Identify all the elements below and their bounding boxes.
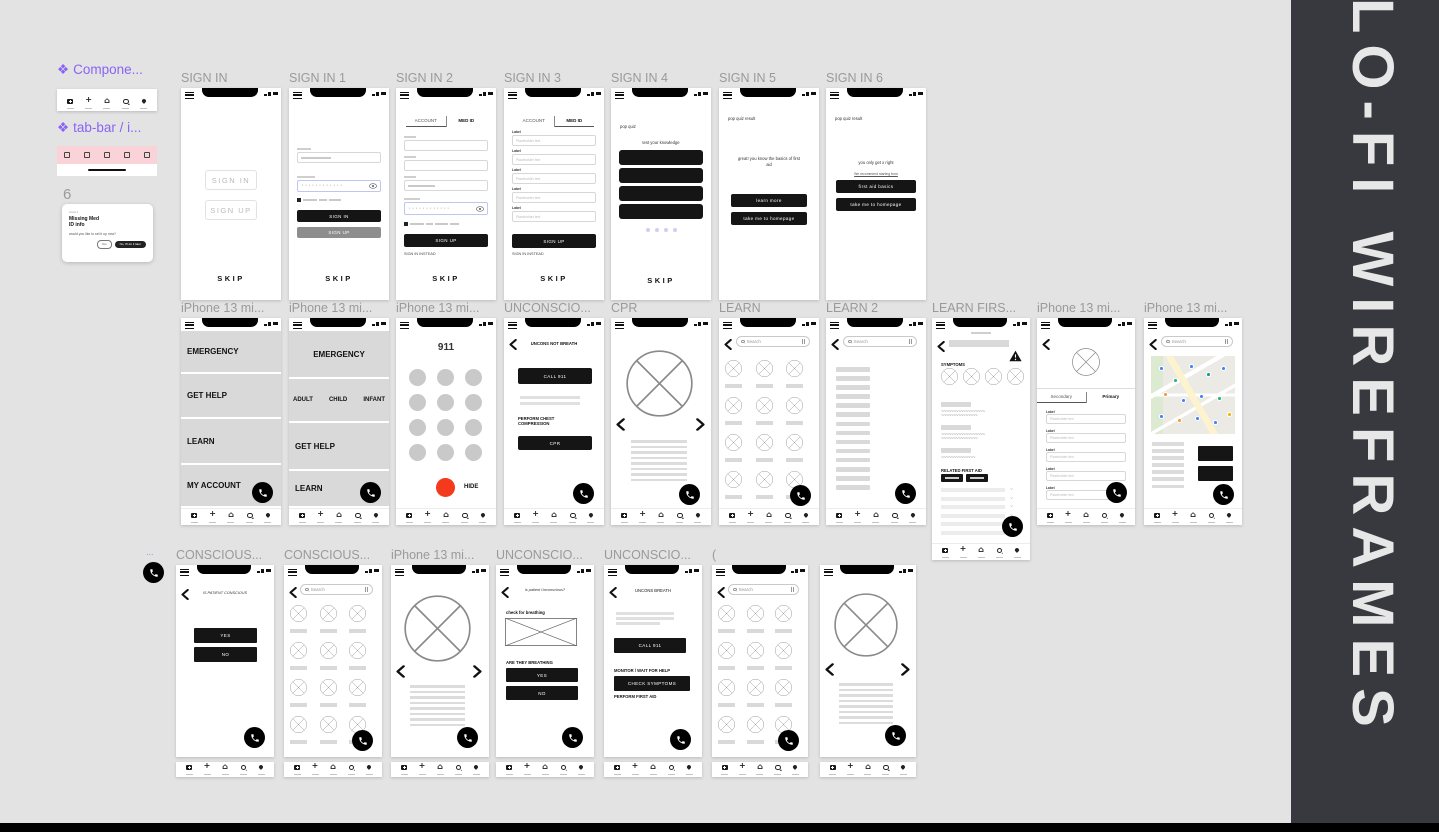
med-id-card[interactable]: Card 1 Missing Med ID info would you lik… — [62, 204, 153, 262]
sign-up-button[interactable]: SIGN UP — [205, 200, 257, 220]
menu-item-emergency[interactable]: EMERGENCY — [289, 331, 389, 377]
yes-button[interactable]: YES — [506, 668, 578, 682]
terms-checkbox[interactable] — [404, 222, 459, 226]
home-icon[interactable] — [549, 512, 558, 523]
carousel-next-icon[interactable] — [901, 663, 910, 676]
home-icon[interactable] — [329, 764, 338, 775]
medkit-icon[interactable] — [400, 764, 409, 775]
component-label-main[interactable]: ❖Compone... — [57, 62, 143, 78]
medkit-icon[interactable] — [1046, 512, 1055, 523]
topic-grid[interactable] — [718, 605, 792, 753]
topic-thumbnail[interactable] — [718, 642, 735, 679]
account-medid-tabs[interactable]: ACCOUNTMED ID — [406, 116, 486, 127]
filter-icon[interactable] — [802, 339, 805, 344]
home-icon[interactable] — [755, 764, 764, 775]
carousel-next-icon[interactable] — [473, 665, 482, 678]
frame-title[interactable]: ( — [712, 548, 716, 562]
back-chevron-icon[interactable] — [1042, 337, 1050, 348]
tab-bar[interactable] — [396, 508, 496, 525]
input-field[interactable]: Placeholder text — [512, 192, 596, 203]
component-tab-bar-placeholder[interactable] — [57, 146, 157, 164]
topic-thumbnail[interactable] — [756, 360, 773, 397]
topic-thumbnail[interactable] — [290, 716, 307, 753]
frame-title[interactable]: iPhone 13 mi... — [1144, 301, 1227, 315]
home-icon[interactable] — [764, 512, 773, 523]
map-action-button[interactable] — [1198, 446, 1233, 461]
carousel-next-icon[interactable] — [696, 418, 705, 431]
location-pin-icon[interactable] — [685, 764, 694, 775]
map-action-button[interactable] — [1198, 466, 1233, 481]
search-icon[interactable] — [460, 512, 469, 523]
frame-title[interactable]: CONSCIOUS... — [284, 548, 370, 562]
card-yes-button[interactable]: Yes — [97, 240, 112, 248]
topic-thumbnail[interactable] — [725, 397, 742, 434]
menu-item-get-help[interactable]: GET HELP — [289, 423, 389, 469]
hamburger-menu-icon[interactable] — [824, 569, 833, 576]
skip-link[interactable]: SKIP — [289, 274, 389, 283]
plus-icon[interactable] — [203, 764, 212, 775]
frame-title[interactable]: CONSCIOUS... — [176, 548, 262, 562]
search-icon[interactable] — [995, 547, 1004, 558]
topic-thumbnail[interactable] — [320, 605, 337, 642]
accordion-list[interactable] — [941, 488, 1005, 540]
frame-title[interactable]: LEARN 2 — [826, 301, 878, 315]
hamburger-menu-icon[interactable] — [293, 92, 302, 99]
frame-title[interactable]: LEARN — [719, 301, 761, 315]
menu-item-emergency[interactable]: EMERGENCY — [181, 331, 281, 372]
phone-fab[interactable] — [360, 482, 381, 503]
phone-fab[interactable] — [790, 485, 811, 506]
topic-thumbnail[interactable] — [786, 434, 803, 471]
sign-in-instead-link[interactable]: SIGN IN INSTEAD — [404, 252, 436, 256]
search-bar[interactable]: Search — [300, 584, 373, 595]
tab-bar[interactable] — [1144, 508, 1242, 525]
hamburger-menu-icon[interactable] — [1041, 322, 1050, 329]
location-pin-icon[interactable] — [472, 764, 481, 775]
location-pin-icon[interactable] — [908, 512, 917, 523]
hamburger-menu-icon[interactable] — [500, 569, 509, 576]
hamburger-menu-icon[interactable] — [830, 322, 839, 329]
search-icon[interactable] — [1100, 512, 1109, 523]
phone-fab[interactable] — [244, 727, 265, 748]
carousel-prev-icon[interactable] — [825, 663, 834, 676]
location-pin-icon[interactable] — [365, 764, 374, 775]
search-icon[interactable] — [675, 512, 684, 523]
location-pin-icon[interactable] — [801, 512, 810, 523]
input-field[interactable] — [404, 140, 488, 151]
medkit-icon[interactable] — [613, 764, 622, 775]
keypad-key[interactable] — [409, 394, 426, 411]
phone-fab[interactable] — [670, 729, 691, 750]
location-pin-icon[interactable] — [371, 512, 380, 523]
related-chip[interactable] — [966, 474, 988, 482]
phone-fab[interactable] — [252, 482, 273, 503]
phone-fab[interactable] — [562, 727, 583, 748]
home-icon[interactable] — [871, 512, 880, 523]
phone-fab-component[interactable] — [143, 562, 164, 583]
topic-thumbnail[interactable] — [725, 434, 742, 471]
plus-icon[interactable] — [208, 512, 217, 523]
phone-fab[interactable] — [352, 730, 373, 751]
location-pin-icon[interactable] — [1013, 547, 1022, 558]
home-icon[interactable] — [649, 764, 658, 775]
back-chevron-icon[interactable] — [1149, 337, 1157, 348]
topic-thumbnail[interactable] — [320, 642, 337, 679]
search-icon[interactable] — [559, 764, 568, 775]
phone-fab[interactable] — [895, 483, 916, 504]
topic-thumbnail[interactable] — [320, 716, 337, 753]
no-button[interactable]: NO — [506, 686, 578, 700]
related-chip[interactable] — [941, 474, 963, 482]
card-later-button[interactable]: No, I'll do it later — [115, 241, 146, 248]
medkit-icon[interactable] — [298, 512, 307, 523]
topic-thumbnail[interactable] — [725, 471, 742, 508]
email-field[interactable] — [297, 152, 381, 163]
home-icon[interactable] — [541, 764, 550, 775]
plus-icon[interactable] — [638, 512, 647, 523]
plus-icon[interactable] — [738, 764, 747, 775]
keypad-key[interactable] — [437, 444, 454, 461]
location-pin-icon[interactable] — [257, 764, 266, 775]
search-icon[interactable] — [667, 764, 676, 775]
topic-thumbnail[interactable] — [725, 360, 742, 397]
plus-icon[interactable] — [418, 764, 427, 775]
note-number[interactable]: 6 — [63, 186, 71, 203]
tab-bar[interactable] — [496, 762, 594, 777]
topic-thumbnail[interactable] — [756, 397, 773, 434]
hamburger-menu-icon[interactable] — [716, 569, 725, 576]
filter-icon[interactable] — [1225, 339, 1228, 344]
plus-icon[interactable] — [853, 512, 862, 523]
hamburger-menu-icon[interactable] — [185, 92, 194, 99]
frame-title[interactable]: iPhone 13 mi... — [391, 548, 474, 562]
eye-icon[interactable] — [476, 206, 484, 212]
input-field[interactable]: Placeholder text — [1046, 433, 1126, 443]
hamburger-menu-icon[interactable] — [508, 92, 517, 99]
hamburger-menu-icon[interactable] — [723, 322, 732, 329]
hamburger-menu-icon[interactable] — [830, 92, 839, 99]
medkit-icon[interactable] — [405, 512, 414, 523]
medkit-icon[interactable] — [828, 764, 837, 775]
medkit-icon[interactable] — [185, 764, 194, 775]
topic-thumbnail[interactable] — [756, 471, 773, 508]
hide-button[interactable]: HIDE — [464, 484, 478, 490]
topic-thumbnail[interactable] — [349, 605, 366, 642]
frame-title[interactable]: SIGN IN 5 — [719, 71, 776, 85]
menu-item-child[interactable]: CHILD — [329, 397, 347, 403]
first-aid-basics-button[interactable]: first aid basics — [836, 180, 916, 193]
quiz-answer-button[interactable] — [619, 204, 703, 219]
plus-icon[interactable] — [959, 547, 968, 558]
sign-in-button[interactable]: SIGN IN — [297, 210, 381, 222]
phone-fab[interactable] — [1002, 516, 1023, 537]
tab-bar[interactable] — [826, 508, 926, 525]
tab-bar[interactable] — [504, 508, 604, 525]
back-chevron-icon[interactable] — [831, 337, 839, 348]
skip-link[interactable]: SKIP — [181, 274, 281, 283]
location-pin-icon[interactable] — [1118, 512, 1127, 523]
plus-icon[interactable] — [746, 512, 755, 523]
medkit-icon[interactable] — [620, 512, 629, 523]
medkit-icon[interactable] — [941, 547, 950, 558]
input-field[interactable]: Placeholder text — [1046, 452, 1126, 462]
medkit-icon[interactable] — [1153, 512, 1162, 523]
frame-title[interactable]: SIGN IN — [181, 71, 228, 85]
learn-more-button[interactable]: learn more — [731, 194, 807, 207]
home-icon[interactable] — [334, 512, 343, 523]
tab-bar[interactable] — [391, 762, 489, 777]
home-icon[interactable] — [656, 512, 665, 523]
homepage-button[interactable]: take me to homepage — [836, 198, 916, 211]
frame-title[interactable]: UNCONSCIO... — [496, 548, 583, 562]
input-field[interactable] — [404, 180, 488, 191]
topic-thumbnail[interactable] — [747, 716, 764, 753]
home-icon[interactable] — [1082, 512, 1091, 523]
tab-primary[interactable]: Primary — [1087, 392, 1136, 403]
phone-fab[interactable] — [885, 725, 906, 746]
location-pin-icon[interactable] — [899, 764, 908, 775]
hamburger-menu-icon[interactable] — [180, 569, 189, 576]
frame-title[interactable]: CPR — [611, 301, 637, 315]
input-field[interactable]: Placeholder text — [512, 135, 596, 146]
plus-icon[interactable] — [846, 764, 855, 775]
frame-title[interactable]: SIGN IN 4 — [611, 71, 668, 85]
topic-thumbnail[interactable] — [290, 642, 307, 679]
filter-icon[interactable] — [365, 587, 368, 592]
back-chevron-icon[interactable] — [724, 337, 732, 348]
eye-icon[interactable] — [369, 183, 377, 189]
carousel-dots[interactable] — [611, 228, 711, 232]
phone-fab[interactable] — [457, 727, 478, 748]
keypad-key[interactable] — [409, 419, 426, 436]
location-pin-icon[interactable] — [478, 512, 487, 523]
component-tab-bar-icons[interactable] — [57, 89, 157, 111]
location-pin-icon[interactable] — [577, 764, 586, 775]
search-icon[interactable] — [773, 764, 782, 775]
no-button[interactable]: NO — [194, 647, 257, 662]
frame-title[interactable]: UNCONSCIO... — [504, 301, 591, 315]
phone-fab[interactable] — [679, 484, 700, 505]
input-field[interactable]: Placeholder text — [512, 154, 596, 165]
search-bar[interactable]: Search — [736, 336, 810, 347]
search-icon[interactable] — [347, 764, 356, 775]
medkit-icon[interactable] — [728, 512, 737, 523]
menu-item-adult[interactable]: ADULT — [293, 397, 313, 403]
search-icon[interactable] — [890, 512, 899, 523]
search-icon[interactable] — [1207, 512, 1216, 523]
search-icon[interactable] — [239, 764, 248, 775]
medkit-icon[interactable] — [190, 512, 199, 523]
frame-title[interactable]: UNCONSCIO... — [604, 548, 691, 562]
input-field[interactable] — [404, 160, 488, 171]
tab-bar[interactable] — [284, 762, 382, 777]
home-icon[interactable] — [977, 547, 986, 558]
plus-icon[interactable] — [531, 512, 540, 523]
home-icon[interactable] — [221, 764, 230, 775]
password-field[interactable]: ············ — [297, 180, 381, 192]
frame-title[interactable]: SIGN IN 6 — [826, 71, 883, 85]
sign-up-button[interactable]: SIGN UP — [512, 234, 596, 248]
home-icon[interactable] — [226, 512, 235, 523]
search-icon[interactable] — [783, 512, 792, 523]
tab-bar[interactable] — [719, 508, 819, 525]
filter-icon[interactable] — [909, 339, 912, 344]
keypad-key[interactable] — [465, 394, 482, 411]
frame-title[interactable]: iPhone 13 mi... — [289, 301, 372, 315]
skip-link[interactable]: SKIP — [611, 276, 711, 285]
hamburger-menu-icon[interactable] — [395, 569, 404, 576]
sign-up-button[interactable]: SIGN UP — [404, 234, 488, 247]
yes-button[interactable]: YES — [194, 628, 257, 643]
carousel-prev-icon[interactable] — [616, 418, 625, 431]
input-field[interactable]: Placeholder text — [512, 173, 596, 184]
topic-thumbnail[interactable] — [786, 360, 803, 397]
keypad-key[interactable] — [437, 394, 454, 411]
hamburger-menu-icon[interactable] — [508, 322, 517, 329]
hamburger-menu-icon[interactable] — [615, 322, 624, 329]
tab-account[interactable]: ACCOUNT — [514, 116, 554, 127]
search-bar[interactable]: Search — [728, 584, 799, 595]
phone-fab[interactable] — [1106, 482, 1127, 503]
remember-checkbox[interactable] — [297, 198, 341, 202]
search-icon[interactable] — [454, 764, 463, 775]
tab-bar[interactable] — [604, 762, 702, 777]
keypad-key[interactable] — [409, 369, 426, 386]
tab-bar[interactable] — [611, 508, 711, 525]
topic-thumbnail[interactable] — [718, 679, 735, 716]
keypad-key[interactable] — [465, 369, 482, 386]
frame-title[interactable]: SIGN IN 2 — [396, 71, 453, 85]
frame-title[interactable]: SIGN IN 1 — [289, 71, 346, 85]
home-icon[interactable] — [1189, 512, 1198, 523]
filter-icon[interactable] — [791, 587, 794, 592]
keypad-key[interactable] — [409, 444, 426, 461]
topic-thumbnail[interactable] — [747, 679, 764, 716]
location-pin-icon[interactable] — [586, 512, 595, 523]
quiz-answer-button[interactable] — [619, 168, 703, 183]
hamburger-menu-icon[interactable] — [1148, 322, 1157, 329]
location-pin-icon[interactable] — [263, 512, 272, 523]
medkit-icon[interactable] — [835, 512, 844, 523]
topic-thumbnail[interactable] — [786, 397, 803, 434]
tab-account[interactable]: ACCOUNT — [406, 116, 446, 127]
phone-fab[interactable] — [778, 730, 799, 751]
plus-icon[interactable] — [311, 764, 320, 775]
homepage-button[interactable]: take me to homepage — [731, 212, 807, 225]
component-label-tabbar[interactable]: ❖tab-bar / i... — [57, 120, 141, 136]
topic-grid[interactable] — [290, 605, 366, 753]
menu-item-get-help[interactable]: GET HELP — [181, 374, 281, 417]
search-icon[interactable] — [881, 764, 890, 775]
hamburger-menu-icon[interactable] — [293, 322, 302, 329]
quiz-answer-button[interactable] — [619, 150, 703, 165]
keypad-key[interactable] — [437, 419, 454, 436]
topic-thumbnail[interactable] — [775, 642, 792, 679]
topic-thumbnail[interactable] — [747, 642, 764, 679]
keypad-key[interactable] — [465, 419, 482, 436]
frame-title[interactable]: LEARN FIRS... — [932, 301, 1016, 315]
back-chevron-icon[interactable] — [717, 585, 725, 596]
plus-icon[interactable] — [423, 512, 432, 523]
home-icon[interactable] — [436, 764, 445, 775]
hamburger-menu-icon[interactable] — [615, 92, 624, 99]
plus-icon[interactable] — [523, 764, 532, 775]
sign-up-button[interactable]: SIGN UP — [297, 227, 381, 238]
medkit-icon[interactable] — [720, 764, 729, 775]
frame-title[interactable]: iPhone 13 mi... — [396, 301, 479, 315]
home-icon[interactable] — [863, 764, 872, 775]
hamburger-menu-icon[interactable] — [288, 569, 297, 576]
search-icon[interactable] — [245, 512, 254, 523]
check-symptoms-button[interactable]: CHECK SYMPTOMS — [614, 676, 690, 691]
account-medid-tabs[interactable]: ACCOUNTMED ID — [514, 116, 594, 127]
medkit-icon[interactable] — [293, 764, 302, 775]
topic-thumbnail[interactable] — [756, 434, 773, 471]
tab-bar[interactable] — [712, 762, 808, 777]
skip-link[interactable]: SKIP — [396, 274, 496, 283]
quiz-answer-button[interactable] — [619, 186, 703, 201]
tab-bar[interactable] — [181, 508, 281, 525]
phone-fab[interactable] — [573, 483, 594, 504]
fab-component-label[interactable]: ... — [146, 547, 154, 557]
medkit-icon[interactable] — [513, 512, 522, 523]
plus-icon[interactable] — [316, 512, 325, 523]
secondary-primary-tabs[interactable]: SecondaryPrimary — [1037, 392, 1135, 403]
menu-item-learn[interactable]: LEARN — [181, 419, 281, 463]
article-list[interactable] — [836, 367, 870, 494]
search-bar[interactable]: Search — [1161, 336, 1233, 347]
topic-thumbnail[interactable] — [290, 605, 307, 642]
frame-title[interactable]: SIGN IN 3 — [504, 71, 561, 85]
hamburger-menu-icon[interactable] — [608, 569, 617, 576]
location-pin-icon[interactable] — [693, 512, 702, 523]
tab-bar[interactable] — [932, 543, 1030, 560]
plus-icon[interactable] — [1064, 512, 1073, 523]
call-911-button[interactable]: CALL 911 — [518, 368, 592, 384]
back-chevron-icon[interactable] — [937, 339, 945, 350]
tab-bar[interactable] — [820, 762, 916, 777]
hamburger-menu-icon[interactable] — [185, 322, 194, 329]
search-icon[interactable] — [353, 512, 362, 523]
topic-thumbnail[interactable] — [775, 679, 792, 716]
search-bar[interactable]: Search — [843, 336, 917, 347]
tab-bar[interactable] — [1037, 508, 1135, 525]
frame-title[interactable]: iPhone 13 mi... — [181, 301, 264, 315]
call-911-button[interactable]: CALL 911 — [614, 638, 686, 653]
topic-thumbnail[interactable] — [775, 605, 792, 642]
hamburger-menu-icon[interactable] — [723, 92, 732, 99]
hamburger-menu-icon[interactable] — [400, 92, 409, 99]
sign-in-instead-link[interactable]: SIGN IN INSTEAD — [512, 252, 544, 256]
password-field[interactable]: ············ — [404, 202, 488, 215]
topic-thumbnail[interactable] — [718, 605, 735, 642]
topic-thumbnail[interactable] — [290, 679, 307, 716]
hamburger-menu-icon[interactable] — [400, 322, 409, 329]
location-pin-icon[interactable] — [791, 764, 800, 775]
tab-med-id[interactable]: MED ID — [447, 116, 487, 127]
tab-secondary[interactable]: Secondary — [1037, 392, 1086, 403]
medkit-icon[interactable] — [505, 764, 514, 775]
topic-thumbnail[interactable] — [718, 716, 735, 753]
location-pin-icon[interactable] — [1225, 512, 1234, 523]
topic-thumbnail[interactable] — [349, 679, 366, 716]
plus-icon[interactable] — [631, 764, 640, 775]
menu-item-infant[interactable]: INFANT — [363, 397, 385, 403]
keypad-key[interactable] — [437, 369, 454, 386]
cpr-button[interactable]: CPR — [518, 436, 592, 450]
keypad-key[interactable] — [465, 444, 482, 461]
sign-in-button[interactable]: SIGN IN — [205, 170, 257, 190]
